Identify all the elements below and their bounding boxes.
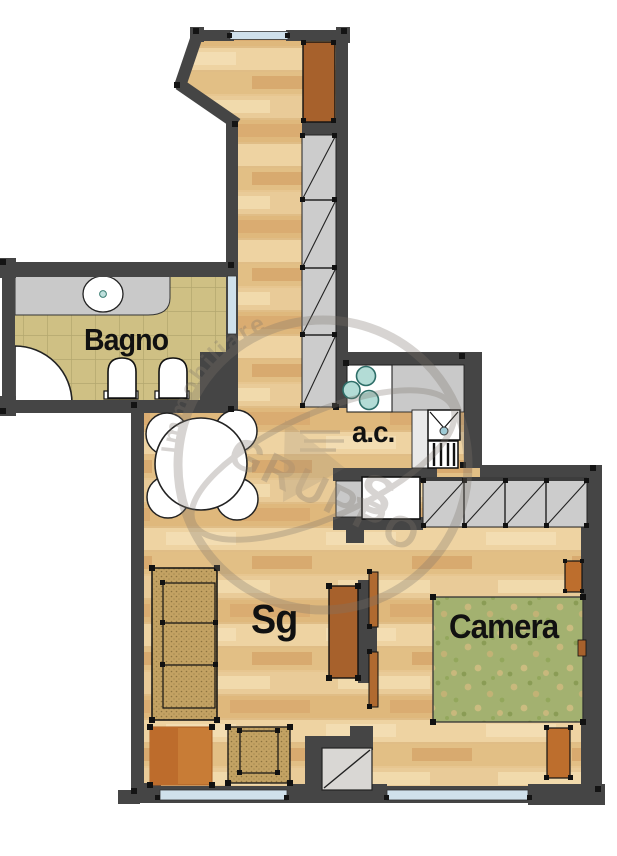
armchair bbox=[225, 724, 293, 786]
basin-drain bbox=[100, 291, 107, 298]
bedroom-wardrobe bbox=[421, 477, 589, 528]
floorplan-canvas: Immobiliare GRUPPO S Bagno a.c. Sg Camer… bbox=[0, 0, 617, 856]
bathroom-label: Bagno bbox=[84, 322, 168, 358]
nightstand-top bbox=[563, 559, 584, 593]
entry-window bbox=[230, 32, 288, 40]
nightstand-bottom bbox=[544, 725, 573, 780]
tv-sideboard bbox=[329, 586, 358, 678]
tv-panel-lower bbox=[369, 652, 378, 707]
floor-rug-orange bbox=[147, 724, 215, 788]
corridor-wardrobe bbox=[300, 133, 337, 408]
fireplace-unit bbox=[322, 748, 372, 790]
kitchenette-label: a.c. bbox=[352, 416, 394, 450]
toilet bbox=[108, 358, 136, 398]
living-room-label: Sg bbox=[251, 596, 297, 643]
bedroom-window bbox=[387, 790, 528, 800]
entry-cabinet bbox=[301, 40, 336, 123]
sofa bbox=[149, 565, 220, 723]
floorplan-drawing: Immobiliare GRUPPO S bbox=[0, 0, 617, 856]
wall-niche bbox=[578, 640, 586, 656]
bedroom-label: Camera bbox=[449, 608, 558, 647]
living-window bbox=[160, 790, 287, 800]
